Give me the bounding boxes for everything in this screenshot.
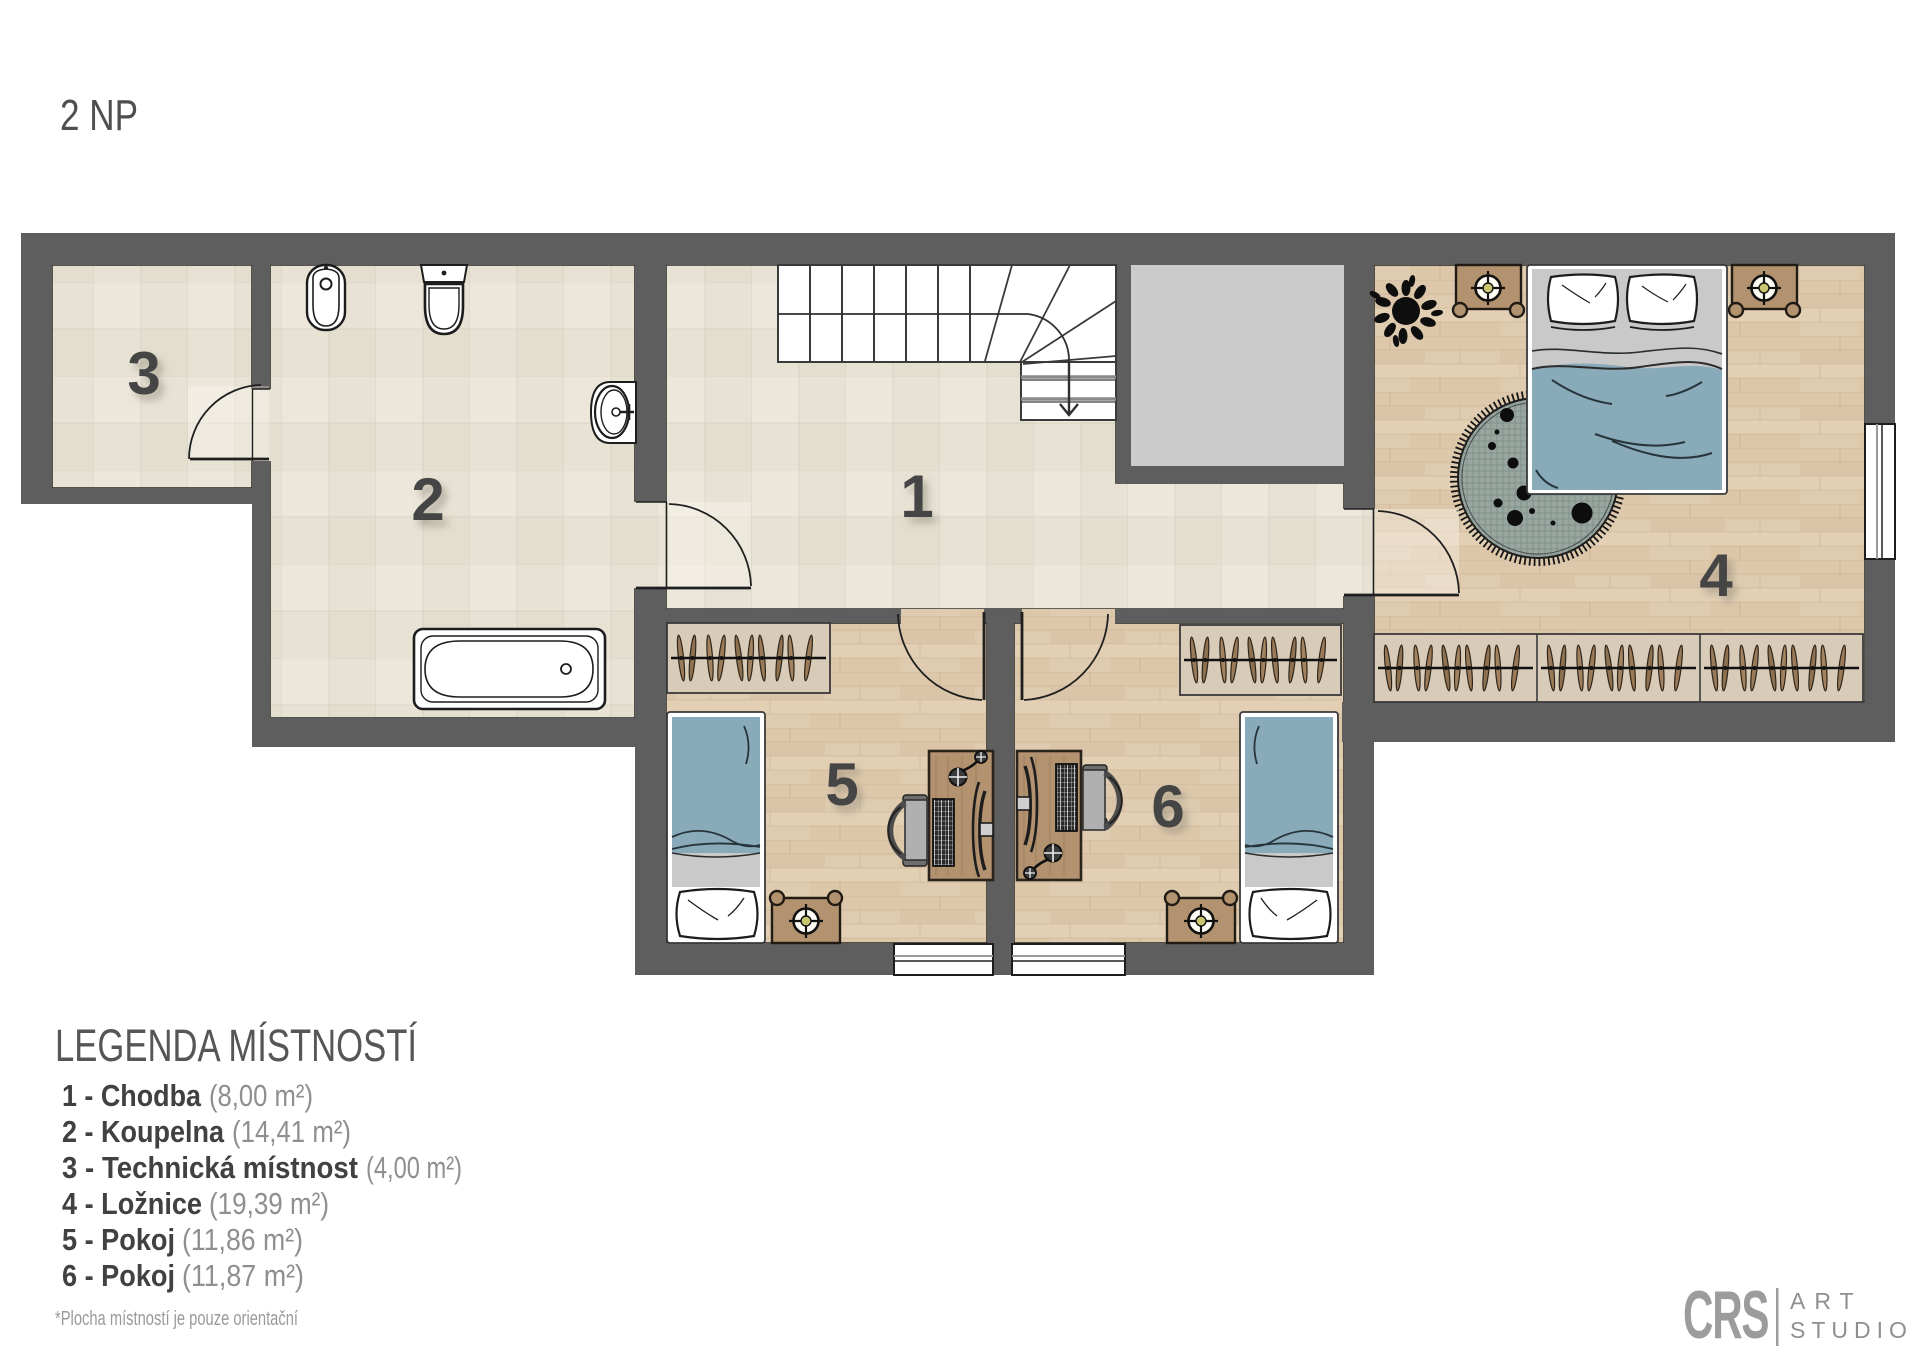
svg-text:2 - Koupelna: 2 - Koupelna [62,1114,225,1149]
svg-text:2: 2 [411,466,444,533]
svg-text:CRS: CRS [1683,1277,1768,1353]
svg-text:(19,39 m²): (19,39 m²) [209,1186,329,1221]
svg-text:6 - Pokoj: 6 - Pokoj [62,1258,175,1293]
svg-text:5 - Pokoj: 5 - Pokoj [62,1222,175,1257]
svg-text:LEGENDA MÍSTNOSTÍ: LEGENDA MÍSTNOSTÍ [55,1020,417,1071]
svg-text:4: 4 [1699,542,1733,609]
svg-text:(11,86 m²): (11,86 m²) [182,1222,303,1257]
svg-text:1 - Chodba: 1 - Chodba [62,1078,202,1113]
svg-text:3: 3 [127,340,160,407]
svg-text:1: 1 [900,463,933,530]
svg-text:3 - Technická místnost: 3 - Technická místnost [62,1150,358,1185]
svg-text:(11,87 m²): (11,87 m²) [182,1258,304,1293]
svg-text:*Plocha místností je pouze ori: *Plocha místností je pouze orientační [55,1308,298,1330]
svg-text:ART: ART [1790,1288,1863,1314]
svg-text:(14,41 m²): (14,41 m²) [232,1114,351,1149]
svg-text:5: 5 [825,751,858,818]
svg-text:(4,00 m²): (4,00 m²) [366,1150,462,1185]
svg-text:STUDIO: STUDIO [1790,1317,1913,1343]
svg-text:2 NP: 2 NP [60,91,138,140]
svg-text:(8,00 m²): (8,00 m²) [209,1078,313,1113]
svg-text:4 - Ložnice: 4 - Ložnice [62,1186,202,1221]
svg-text:6: 6 [1151,773,1184,840]
